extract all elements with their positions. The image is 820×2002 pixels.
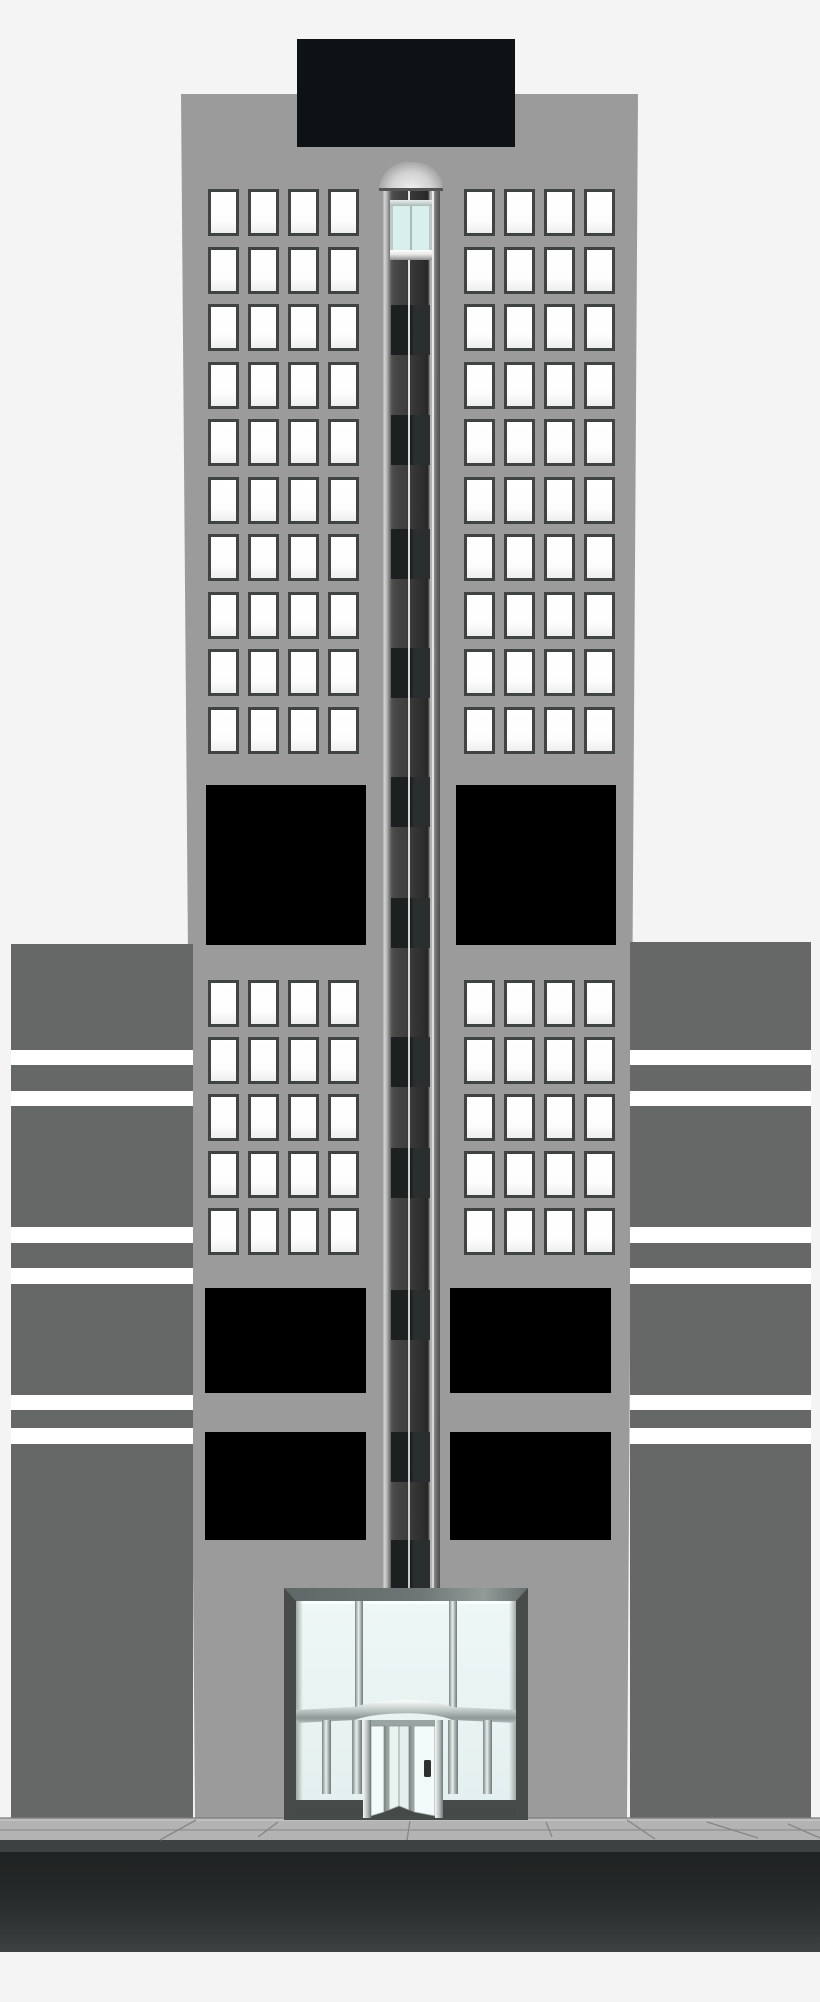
- window: [208, 189, 239, 236]
- window: [328, 1094, 359, 1141]
- window: [544, 649, 575, 696]
- window: [504, 304, 535, 351]
- window: [544, 592, 575, 639]
- rooftop-sign: [297, 39, 515, 147]
- entrance-glass-highlight: [296, 1601, 516, 1604]
- window: [328, 362, 359, 409]
- window: [504, 362, 535, 409]
- window: [584, 534, 615, 581]
- window: [504, 477, 535, 524]
- window: [288, 419, 319, 466]
- window: [208, 247, 239, 294]
- elevator-door: [391, 898, 430, 948]
- window: [208, 980, 239, 1027]
- window: [464, 534, 495, 581]
- elevator-car-sill: [390, 250, 432, 260]
- window: [288, 649, 319, 696]
- window: [328, 1151, 359, 1198]
- window: [328, 1037, 359, 1084]
- window: [328, 980, 359, 1027]
- elevator-dome-base: [379, 188, 443, 191]
- window: [544, 419, 575, 466]
- elevator-door: [391, 1432, 430, 1482]
- window: [248, 592, 279, 639]
- pane-divider-right: [483, 1720, 492, 1794]
- window: [464, 1037, 495, 1084]
- window: [544, 980, 575, 1027]
- window: [584, 980, 615, 1027]
- facade-stripe: [630, 1395, 811, 1410]
- folding-door-fold: [384, 1726, 389, 1812]
- window: [584, 1151, 615, 1198]
- window: [248, 304, 279, 351]
- window: [584, 419, 615, 466]
- window: [584, 1094, 615, 1141]
- window: [288, 592, 319, 639]
- window: [544, 1037, 575, 1084]
- window: [464, 649, 495, 696]
- window: [288, 1208, 319, 1255]
- window: [544, 189, 575, 236]
- window: [248, 247, 279, 294]
- window: [248, 980, 279, 1027]
- window: [584, 592, 615, 639]
- window: [464, 1151, 495, 1198]
- window: [208, 477, 239, 524]
- facade-stripe: [11, 1227, 193, 1243]
- elevator-door: [391, 305, 430, 355]
- elevator-door: [391, 648, 430, 698]
- entrance-shadow-left: [296, 1601, 303, 1800]
- window: [464, 419, 495, 466]
- window: [208, 1037, 239, 1084]
- folding-door-leaf: [389, 1726, 399, 1810]
- elevator-car: [390, 200, 432, 260]
- window: [208, 362, 239, 409]
- window: [328, 477, 359, 524]
- window: [504, 1094, 535, 1141]
- window: [288, 247, 319, 294]
- window: [248, 534, 279, 581]
- window: [464, 362, 495, 409]
- facade-stripe: [630, 1268, 811, 1284]
- window: [504, 707, 535, 754]
- window: [584, 304, 615, 351]
- entrance-mullion-right: [449, 1601, 457, 1709]
- window: [328, 189, 359, 236]
- window: [248, 362, 279, 409]
- mullion-lower-left: [352, 1720, 362, 1794]
- black-panel: [450, 1432, 611, 1540]
- elevator-rail: [408, 189, 410, 1592]
- window: [248, 1094, 279, 1141]
- window: [584, 189, 615, 236]
- window: [464, 1094, 495, 1141]
- facade-stripe: [11, 1395, 193, 1410]
- facade-stripe: [630, 1050, 811, 1065]
- black-panel: [205, 1288, 366, 1393]
- window: [328, 534, 359, 581]
- entrance-mullion-left: [355, 1601, 363, 1709]
- entrance: [284, 1586, 528, 1822]
- window: [248, 1208, 279, 1255]
- window: [288, 189, 319, 236]
- window: [208, 1151, 239, 1198]
- sidewalk-seam: [788, 1824, 820, 1838]
- window: [584, 247, 615, 294]
- window: [288, 1037, 319, 1084]
- window: [248, 649, 279, 696]
- window: [208, 592, 239, 639]
- mullion-lower-right: [448, 1720, 458, 1794]
- black-panel: [450, 1288, 611, 1393]
- window: [328, 592, 359, 639]
- window: [208, 707, 239, 754]
- window: [464, 1208, 495, 1255]
- window: [208, 649, 239, 696]
- facade-stripe: [11, 1268, 193, 1284]
- facade-stripe: [11, 1050, 193, 1065]
- facade-stripe: [630, 1428, 811, 1444]
- window: [544, 477, 575, 524]
- door-post-left: [363, 1720, 371, 1818]
- window: [464, 592, 495, 639]
- elevator-door: [391, 1037, 430, 1087]
- elevator-door: [391, 415, 430, 465]
- window: [248, 1151, 279, 1198]
- window: [464, 980, 495, 1027]
- window: [504, 1037, 535, 1084]
- window: [544, 304, 575, 351]
- elevator-car-glass: [390, 206, 432, 250]
- window: [504, 419, 535, 466]
- facade-stripe: [11, 1428, 193, 1444]
- black-panel: [456, 785, 616, 945]
- scene: [0, 0, 820, 2002]
- window: [328, 304, 359, 351]
- facade-stripe: [630, 1227, 811, 1243]
- window: [328, 1208, 359, 1255]
- window: [584, 477, 615, 524]
- window: [288, 304, 319, 351]
- window: [288, 534, 319, 581]
- black-panel: [205, 1432, 366, 1540]
- elevator-door: [391, 529, 430, 579]
- window: [544, 1094, 575, 1141]
- window: [544, 707, 575, 754]
- window: [328, 247, 359, 294]
- folding-door-leaf: [399, 1726, 409, 1810]
- window: [208, 419, 239, 466]
- window: [544, 247, 575, 294]
- window: [504, 592, 535, 639]
- window: [288, 1151, 319, 1198]
- elevator-door: [391, 1290, 430, 1340]
- elevator-shaft: [382, 189, 440, 1592]
- window: [584, 1037, 615, 1084]
- window: [544, 1151, 575, 1198]
- background-building-right: [630, 942, 811, 1818]
- door-lintel: [371, 1720, 435, 1726]
- window: [464, 477, 495, 524]
- folding-door-leaf: [371, 1726, 384, 1816]
- window: [288, 980, 319, 1027]
- facade-stripe: [11, 1091, 193, 1106]
- window: [504, 1208, 535, 1255]
- window: [208, 304, 239, 351]
- window: [584, 707, 615, 754]
- window: [248, 1037, 279, 1084]
- entrance-shadow-right: [509, 1601, 516, 1800]
- door-post-right: [435, 1720, 443, 1818]
- window: [504, 649, 535, 696]
- window: [544, 534, 575, 581]
- background-building-left: [11, 944, 193, 1818]
- black-panel: [206, 785, 366, 945]
- folding-door-fold: [409, 1726, 414, 1812]
- window: [328, 649, 359, 696]
- window: [504, 189, 535, 236]
- elevator-rail: [432, 189, 434, 1592]
- window: [584, 1208, 615, 1255]
- window: [208, 1094, 239, 1141]
- window: [328, 707, 359, 754]
- window: [504, 247, 535, 294]
- window: [328, 419, 359, 466]
- window: [288, 477, 319, 524]
- window: [464, 247, 495, 294]
- facade-stripe: [630, 1091, 811, 1106]
- door-handle: [424, 1760, 431, 1777]
- window: [248, 189, 279, 236]
- elevator-door: [391, 777, 430, 827]
- elevator-door: [391, 1540, 430, 1590]
- window: [248, 419, 279, 466]
- window: [464, 707, 495, 754]
- pane-divider-left: [322, 1720, 331, 1794]
- elevator-door: [391, 1148, 430, 1198]
- entrance-canopy-top: [284, 1588, 528, 1601]
- window: [208, 534, 239, 581]
- window: [584, 649, 615, 696]
- window: [248, 707, 279, 754]
- road: [0, 1852, 820, 1952]
- window: [464, 304, 495, 351]
- window: [464, 189, 495, 236]
- window: [208, 1208, 239, 1255]
- window: [288, 1094, 319, 1141]
- window: [504, 1151, 535, 1198]
- window: [584, 362, 615, 409]
- window: [544, 1208, 575, 1255]
- window: [504, 980, 535, 1027]
- window: [288, 362, 319, 409]
- window: [504, 534, 535, 581]
- window: [544, 362, 575, 409]
- window: [248, 477, 279, 524]
- window: [288, 707, 319, 754]
